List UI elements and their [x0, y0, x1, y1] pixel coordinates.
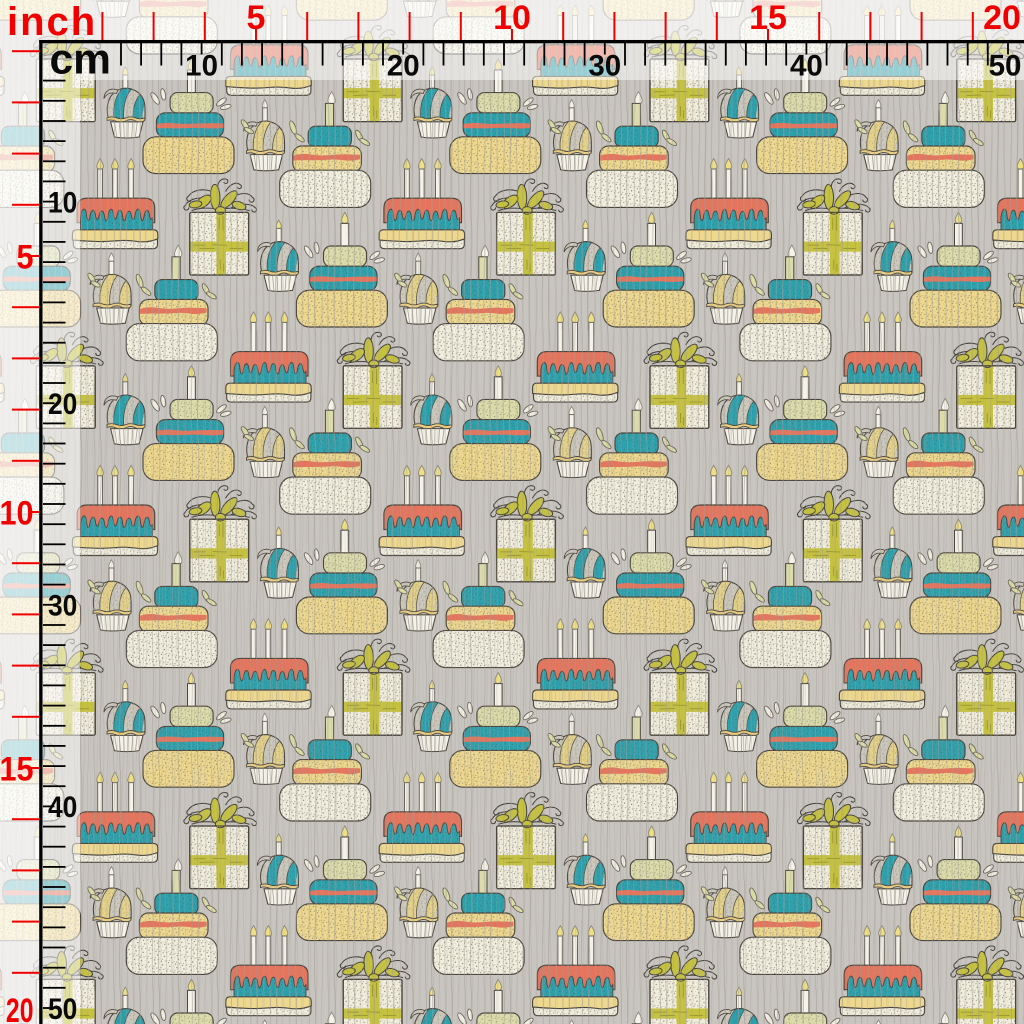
svg-text:30: 30	[48, 588, 77, 622]
svg-text:15: 15	[0, 750, 34, 788]
svg-text:20: 20	[983, 0, 1021, 37]
svg-text:5: 5	[247, 0, 266, 37]
svg-text:10: 10	[0, 494, 34, 532]
svg-text:20: 20	[48, 386, 77, 420]
svg-text:5: 5	[16, 238, 33, 276]
svg-text:40: 40	[48, 790, 77, 824]
svg-text:10: 10	[48, 185, 77, 219]
svg-text:10: 10	[185, 50, 218, 83]
svg-text:15: 15	[749, 0, 787, 37]
svg-text:40: 40	[790, 50, 823, 83]
svg-text:50: 50	[48, 991, 77, 1024]
svg-text:30: 30	[588, 50, 621, 83]
svg-text:10: 10	[493, 0, 531, 37]
svg-text:20: 20	[387, 50, 420, 83]
svg-text:cm: cm	[50, 36, 111, 83]
svg-text:50: 50	[989, 50, 1022, 83]
svg-text:20: 20	[6, 992, 34, 1024]
